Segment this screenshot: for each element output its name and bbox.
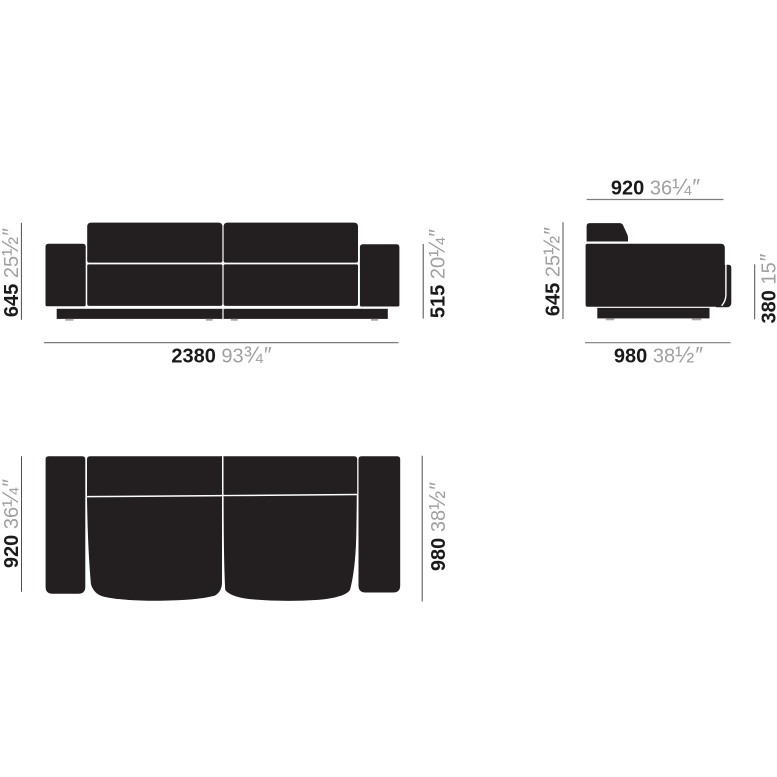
svg-text:980 38½″: 980 38½″ [614, 341, 703, 367]
svg-text:515 20¼″: 515 20¼″ [423, 229, 449, 318]
svg-text:920 36¼″: 920 36¼″ [611, 174, 700, 200]
svg-text:920 36¼″: 920 36¼″ [0, 479, 23, 568]
svg-text:380 15″: 380 15″ [755, 253, 777, 323]
svg-text:980 38½″: 980 38½″ [424, 482, 450, 571]
svg-text:645 25½″: 645 25½″ [539, 227, 565, 316]
svg-text:645 25½″: 645 25½″ [0, 228, 23, 317]
svg-text:2380 93¾″: 2380 93¾″ [171, 341, 272, 367]
